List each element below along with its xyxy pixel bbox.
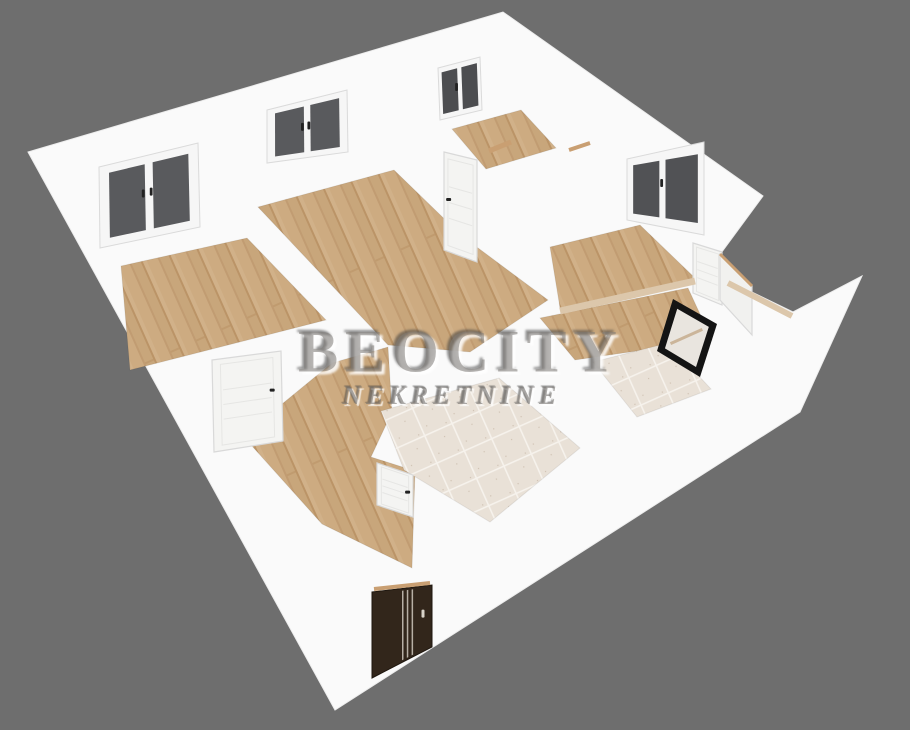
door-bedroom	[212, 351, 283, 452]
window-1-handle-icon	[150, 188, 153, 196]
entrance-door-handle-icon	[422, 610, 425, 618]
window-2-pane-1	[275, 107, 304, 157]
entrance-door-stripe-2	[407, 590, 409, 658]
window-2-handle-icon	[307, 122, 310, 130]
window-3-handle-icon	[455, 83, 458, 91]
door-top-room	[444, 152, 477, 262]
window-2-handle-icon	[301, 123, 304, 131]
window-1-pane-1	[109, 164, 146, 238]
window-4-pane-1	[633, 161, 659, 218]
window-1-pane-2	[153, 154, 190, 229]
window-2-pane-2	[310, 98, 340, 151]
door-bedroom-handle-icon	[270, 389, 275, 392]
window-3	[438, 57, 482, 120]
door-top-room-handle-icon	[446, 198, 451, 201]
window-4	[627, 142, 704, 235]
window-3-pane-2	[461, 63, 478, 109]
floorplan-viewport: BEOCITY NEKRETNINE	[0, 0, 910, 730]
window-4-pane-2	[666, 154, 698, 223]
floorplan-svg	[0, 0, 910, 730]
entrance-door-stripe-3	[412, 589, 414, 655]
entrance-door-stripe-1	[402, 591, 404, 661]
window-3-pane-1	[442, 68, 459, 114]
door-bathroom-handle-icon	[405, 491, 410, 494]
window-1-handle-icon	[142, 189, 145, 197]
window-4-handle-icon	[660, 179, 663, 187]
